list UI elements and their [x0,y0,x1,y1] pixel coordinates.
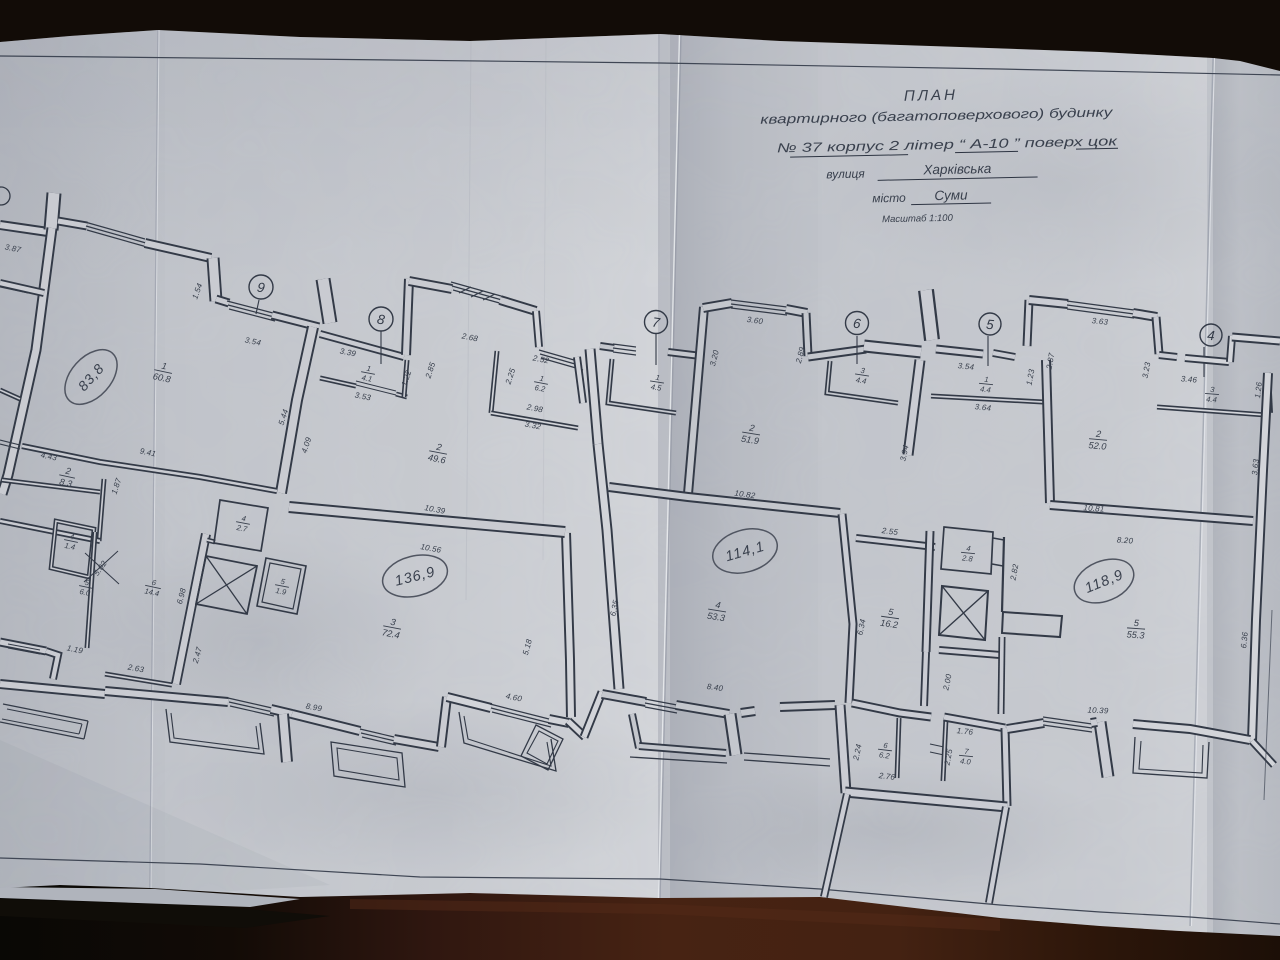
svg-text:4: 4 [1207,328,1216,343]
svg-text:вулиця: вулиця [826,167,865,182]
svg-text:52.0: 52.0 [1088,440,1108,452]
svg-text:8.20: 8.20 [1116,535,1133,545]
svg-text:55.3: 55.3 [1126,629,1145,640]
svg-text:1.76: 1.76 [956,726,974,737]
svg-text:Харківська: Харківська [922,161,992,177]
svg-text:4.4: 4.4 [980,384,991,394]
svg-text:3.63: 3.63 [1250,458,1261,476]
svg-text:2: 2 [1095,429,1102,439]
svg-text:2.8: 2.8 [961,553,974,563]
svg-text:10.39: 10.39 [1087,705,1109,715]
svg-text:10.81: 10.81 [1083,503,1105,513]
svg-text:ПЛАН: ПЛАН [904,87,958,105]
svg-text:4.4: 4.4 [1206,395,1217,405]
svg-text:4.0: 4.0 [960,756,972,766]
svg-text:6.36: 6.36 [1239,631,1250,649]
svg-text:Масштаб 1:100: Масштаб 1:100 [882,213,954,225]
svg-text:3.46: 3.46 [1180,374,1197,384]
svg-text:3.64: 3.64 [974,402,992,413]
svg-text:Суми: Суми [934,187,968,203]
svg-text:місто: місто [872,191,906,206]
svg-text:6.2: 6.2 [879,750,891,760]
svg-text:3.63: 3.63 [1091,316,1109,327]
svg-text:4.4: 4.4 [855,375,867,386]
svg-text:3.54: 3.54 [957,361,975,372]
